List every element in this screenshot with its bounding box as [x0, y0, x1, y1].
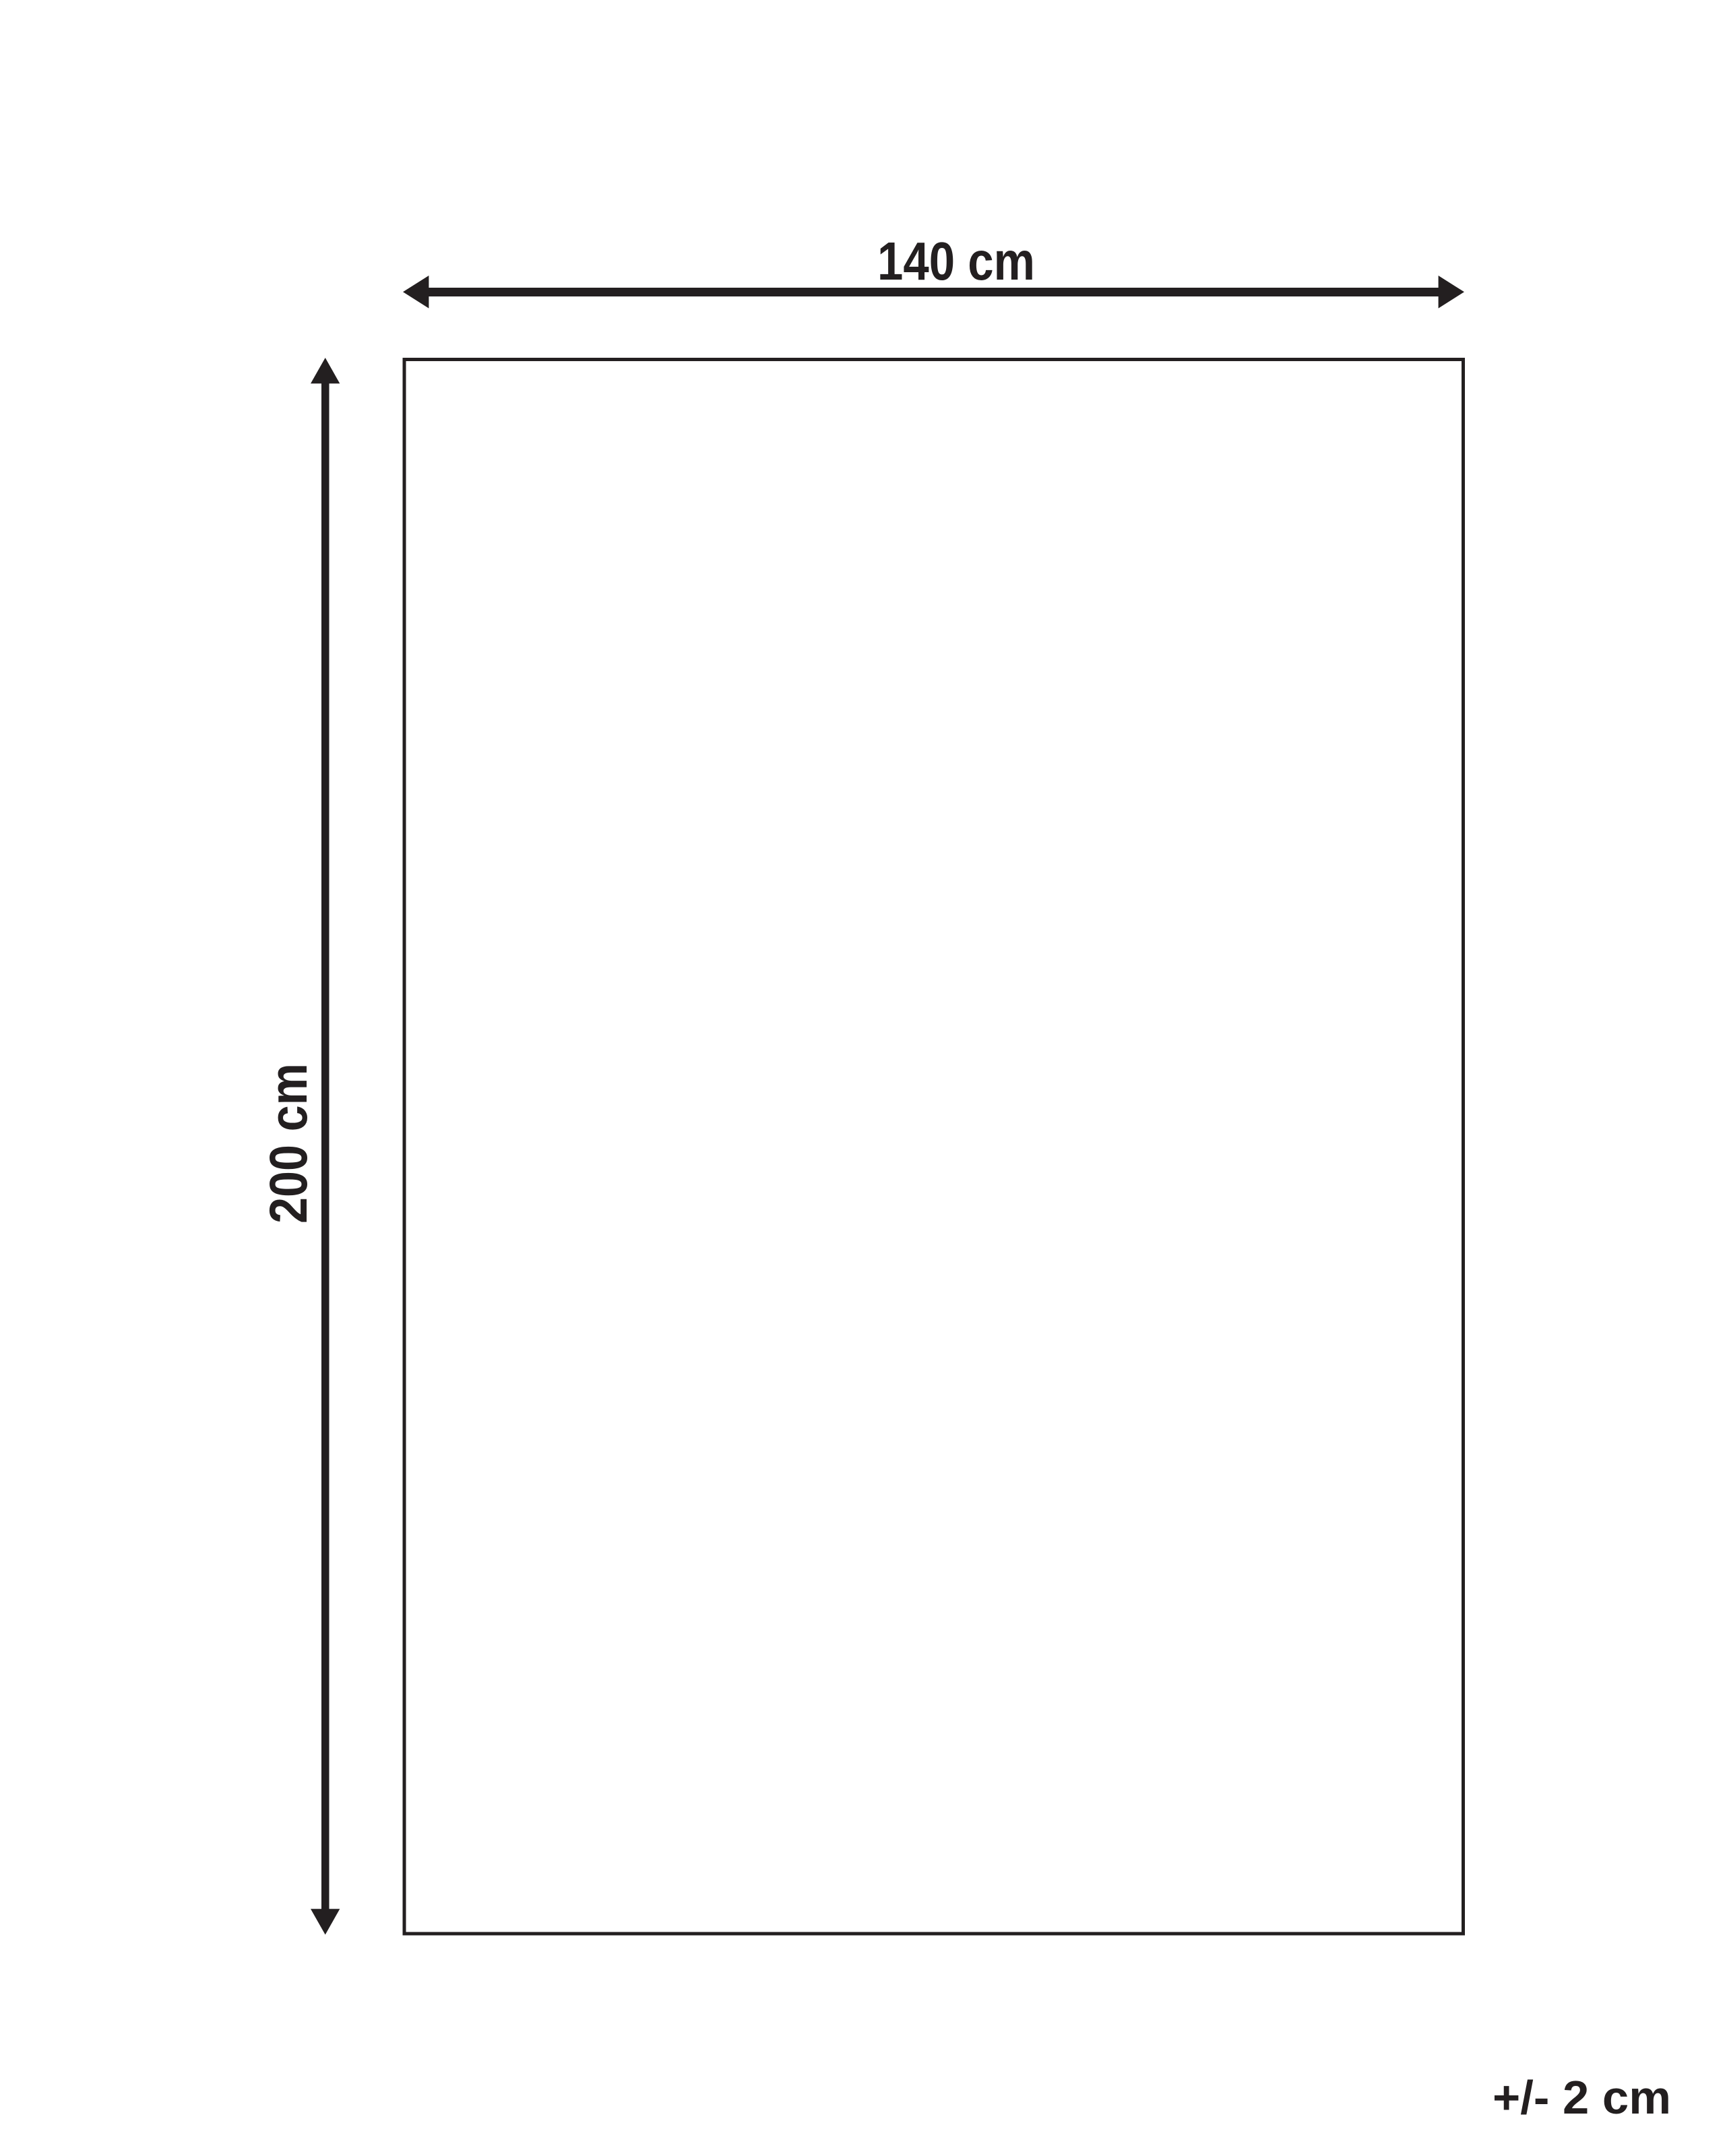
- svg-text:200 cm: 200 cm: [258, 1063, 318, 1224]
- svg-text:140 cm: 140 cm: [877, 231, 1035, 291]
- svg-text:+/- 2 cm: +/- 2 cm: [1493, 2071, 1671, 2124]
